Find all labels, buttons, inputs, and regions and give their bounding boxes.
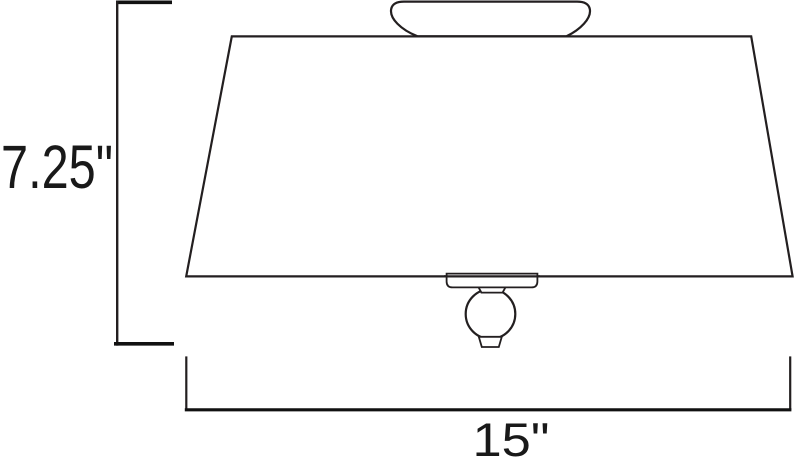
height-dimension: 7.25" bbox=[1, 1, 174, 346]
diagram-canvas: 7.25" 15" bbox=[0, 0, 797, 469]
width-dimension: 15" bbox=[185, 356, 792, 466]
tapered-shade bbox=[186, 36, 792, 276]
ceiling-canopy bbox=[391, 2, 590, 37]
finial-neck bbox=[479, 287, 506, 292]
fixture-dimension-diagram: 7.25" 15" bbox=[0, 0, 797, 469]
height-dimension-label: 7.25" bbox=[1, 133, 113, 201]
fixture-drawing bbox=[186, 2, 792, 347]
width-dimension-label: 15" bbox=[473, 413, 550, 466]
finial-knob bbox=[479, 337, 502, 347]
finial-ball bbox=[466, 289, 516, 339]
